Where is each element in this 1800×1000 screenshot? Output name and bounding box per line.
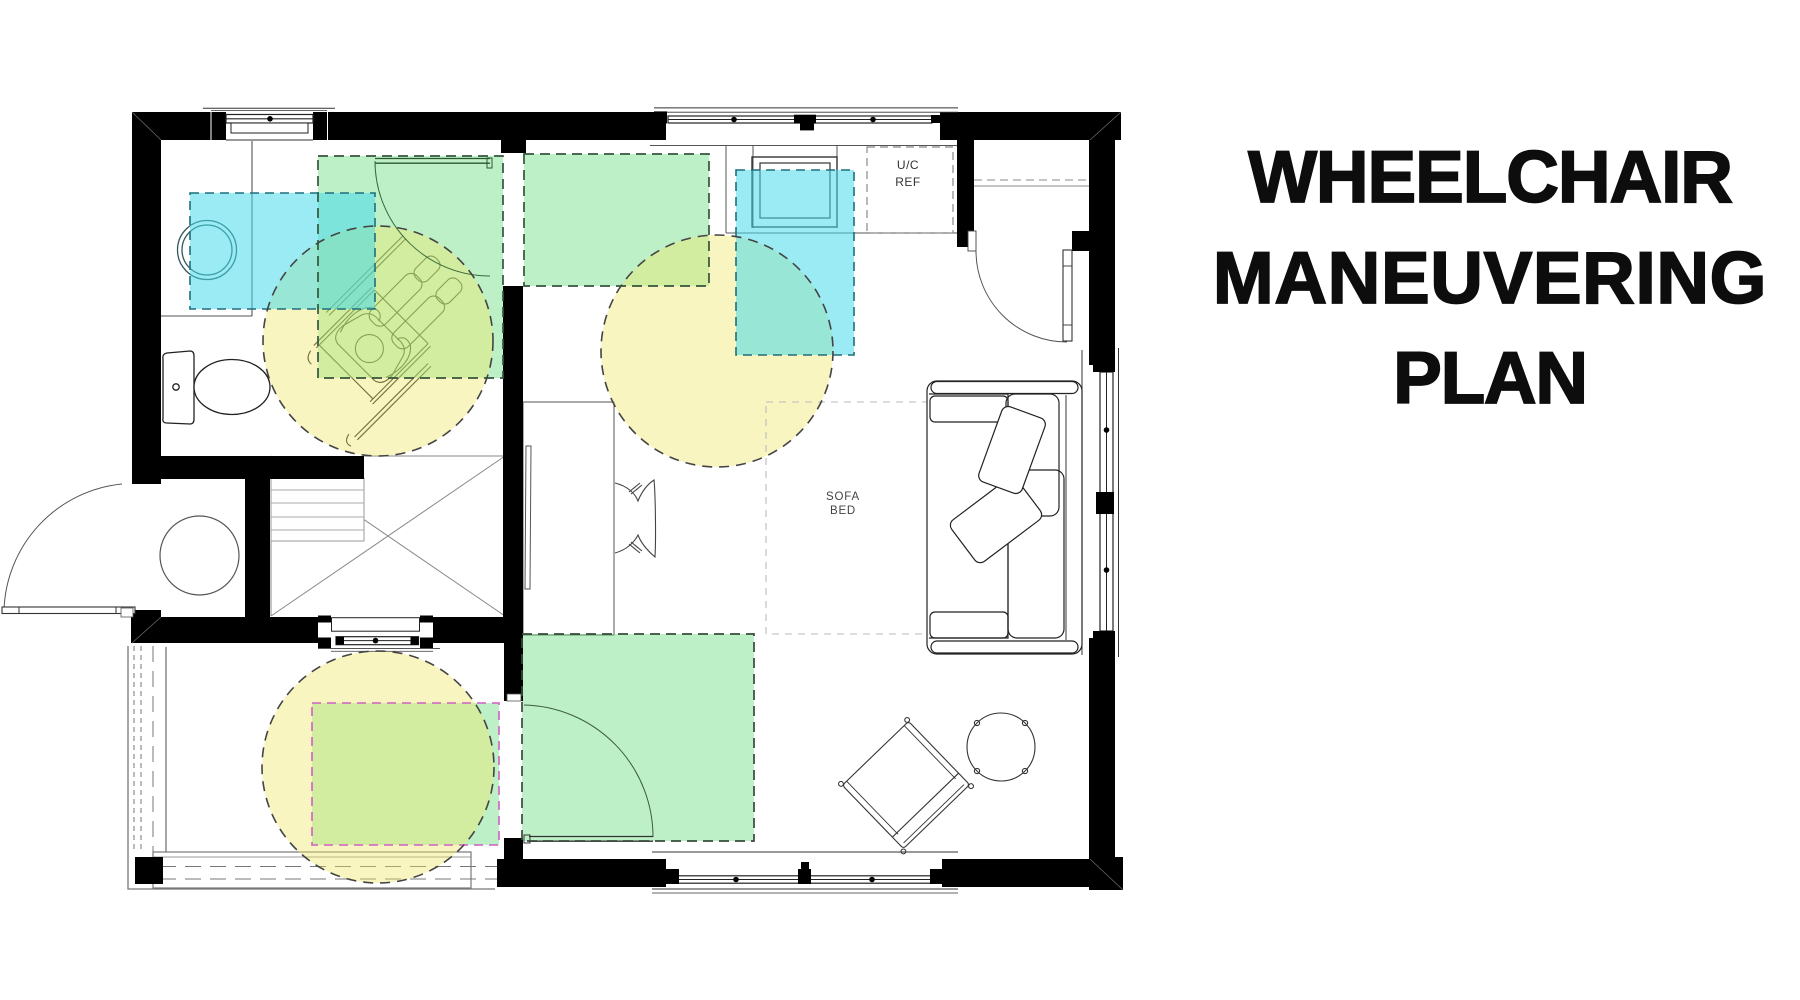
svg-text:SOFA: SOFA bbox=[826, 491, 860, 503]
svg-text:REF: REF bbox=[895, 175, 921, 189]
svg-text:U/C: U/C bbox=[897, 158, 919, 172]
svg-text:BED: BED bbox=[830, 505, 856, 517]
